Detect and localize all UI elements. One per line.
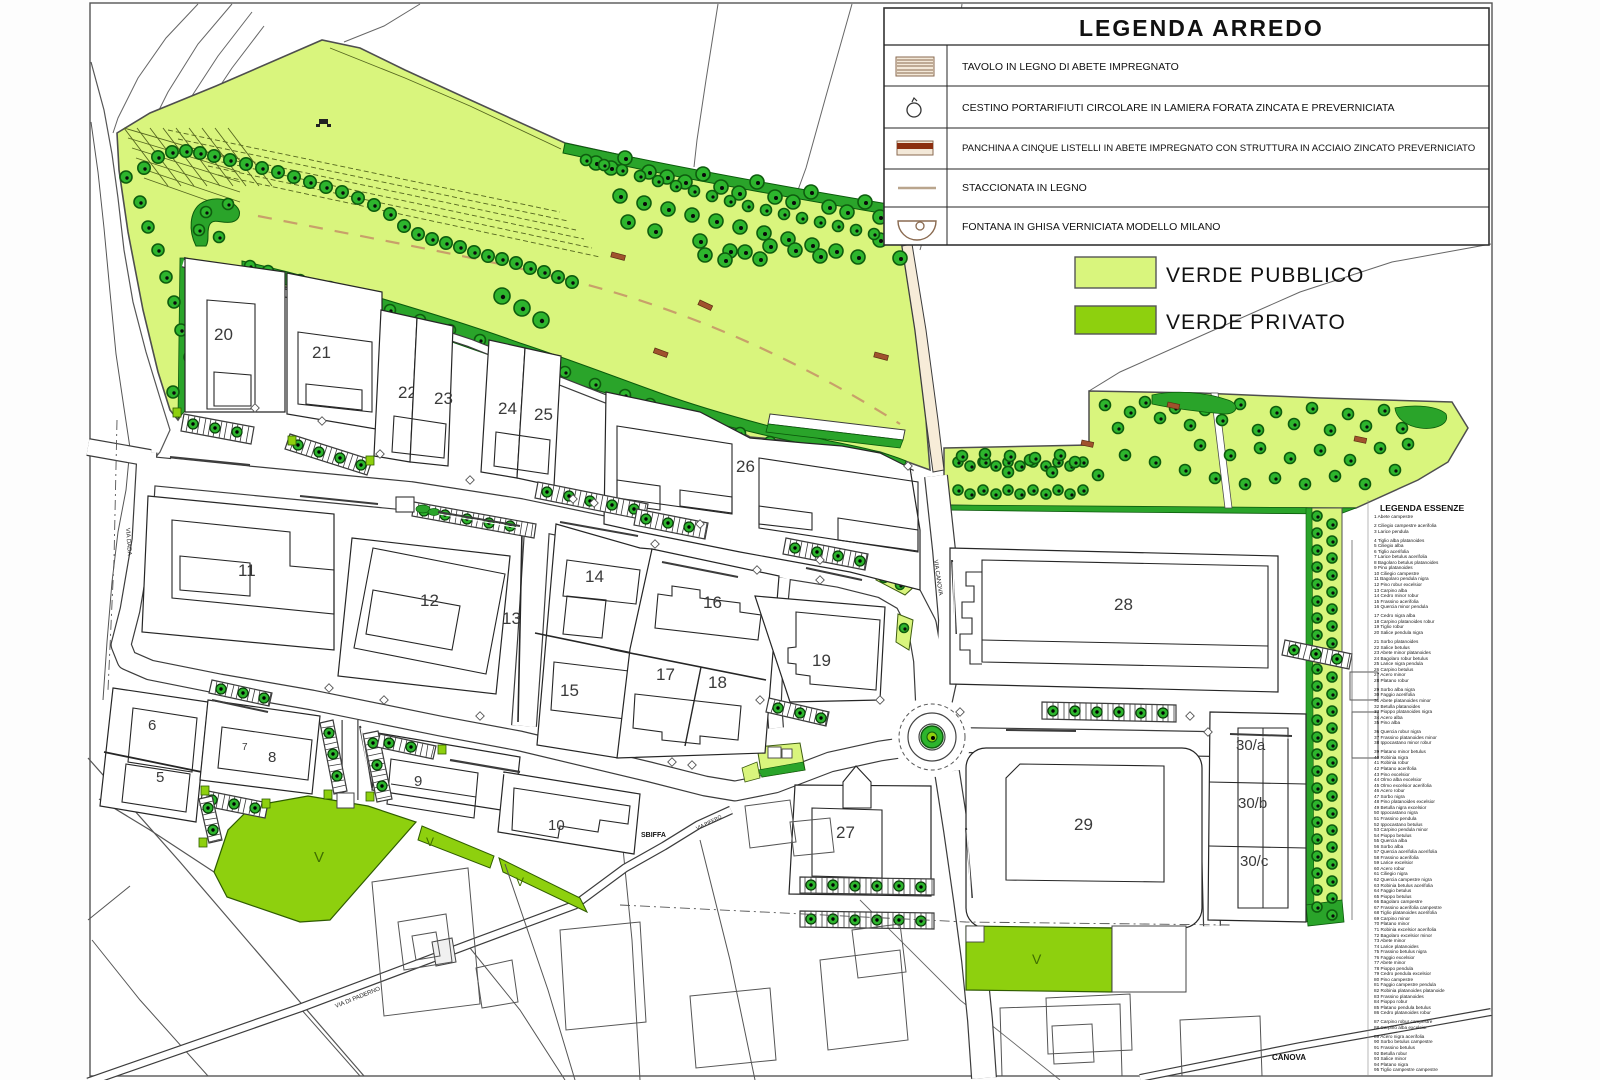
svg-text:11 Bagolaro pendula nigra: 11 Bagolaro pendula nigra — [1374, 576, 1429, 581]
svg-text:9 Pino platanoides: 9 Pino platanoides — [1374, 565, 1413, 570]
svg-text:84 Pioppo robur: 84 Pioppo robur — [1374, 999, 1408, 1004]
svg-text:25: 25 — [534, 405, 553, 424]
svg-text:93 Salice minor: 93 Salice minor — [1374, 1056, 1407, 1061]
svg-text:14 Cedro minor robur: 14 Cedro minor robur — [1374, 593, 1419, 598]
svg-text:CANOVA: CANOVA — [1272, 1053, 1306, 1062]
svg-text:1 Abete campestre: 1 Abete campestre — [1374, 514, 1413, 519]
svg-text:12 Pino robur excelsior: 12 Pino robur excelsior — [1374, 582, 1422, 587]
svg-text:CESTINO PORTARIFIUTI CIRCOLA: CESTINO PORTARIFIUTI CIRCOLARE IN LAMIER… — [962, 102, 1395, 114]
svg-text:21: 21 — [312, 343, 331, 362]
svg-text:15: 15 — [560, 681, 579, 700]
svg-text:16 Quercia minor pendula: 16 Quercia minor pendula — [1374, 604, 1428, 609]
svg-text:90 Sorbo betulus campestre: 90 Sorbo betulus campestre — [1374, 1039, 1433, 1044]
svg-text:17 Cedro nigra alba: 17 Cedro nigra alba — [1374, 613, 1416, 618]
svg-text:38 Ippocastano minor robur: 38 Ippocastano minor robur — [1374, 740, 1432, 745]
svg-text:STACCIONATA IN LEGNO: STACCIONATA IN LEGNO — [962, 182, 1087, 194]
svg-text:17: 17 — [656, 665, 675, 684]
svg-text:36 Quercia robur nigra: 36 Quercia robur nigra — [1374, 729, 1421, 734]
svg-text:7 Larice betulus acerifolia: 7 Larice betulus acerifolia — [1374, 554, 1428, 559]
svg-text:57 Quercia acerifolia acerifo: 57 Quercia acerifolia acerifolia — [1374, 849, 1437, 854]
svg-text:PANCHINA A CINQUE LISTELLI: PANCHINA A CINQUE LISTELLI IN ABETE IMPR… — [962, 143, 1475, 154]
svg-text:V: V — [1032, 951, 1042, 967]
svg-text:TAVOLO IN LEGNO DI ABETE: TAVOLO IN LEGNO DI ABETE IMPREGNATO — [962, 61, 1179, 73]
svg-text:73 Abete minor: 73 Abete minor — [1374, 938, 1406, 943]
svg-text:9: 9 — [414, 773, 422, 790]
svg-text:30 Faggio acerifolia: 30 Faggio acerifolia — [1374, 692, 1415, 697]
svg-text:77 Abete minor: 77 Abete minor — [1374, 960, 1406, 965]
svg-text:5 Ciliegio alba: 5 Ciliegio alba — [1374, 543, 1404, 548]
svg-text:30/a: 30/a — [1236, 737, 1266, 754]
svg-text:59 Larice excelsior: 59 Larice excelsior — [1374, 860, 1414, 865]
svg-text:26: 26 — [736, 457, 755, 476]
svg-text:86 Cedro platanoides robur: 86 Cedro platanoides robur — [1374, 1010, 1431, 1015]
svg-text:21 Sorbo platanoides: 21 Sorbo platanoides — [1374, 639, 1419, 644]
svg-text:24: 24 — [498, 399, 517, 418]
svg-text:39 Platano minor betulus: 39 Platano minor betulus — [1374, 749, 1427, 754]
svg-text:23 Abete minor platanoides: 23 Abete minor platanoides — [1374, 650, 1431, 655]
svg-text:64 Faggio betulus: 64 Faggio betulus — [1374, 888, 1412, 893]
svg-text:23: 23 — [434, 389, 453, 408]
svg-text:30/b: 30/b — [1238, 795, 1267, 812]
svg-text:46 Acero robur: 46 Acero robur — [1374, 788, 1405, 793]
svg-text:27: 27 — [836, 823, 855, 842]
svg-text:VERDE PUBBLICO: VERDE PUBBLICO — [1166, 264, 1364, 287]
svg-text:V: V — [314, 849, 324, 866]
svg-text:20 Salice pendula nigra: 20 Salice pendula nigra — [1374, 630, 1423, 635]
svg-text:8: 8 — [268, 749, 276, 766]
svg-text:75 Frassino betulus nigra: 75 Frassino betulus nigra — [1374, 949, 1427, 954]
svg-text:27 Acero minor: 27 Acero minor — [1374, 672, 1406, 677]
svg-text:48 Pino platanoides excelsior: 48 Pino platanoides excelsior — [1374, 799, 1435, 804]
svg-text:42 Platano acerifolia: 42 Platano acerifolia — [1374, 766, 1417, 771]
svg-text:55 Quercia alba: 55 Quercia alba — [1374, 838, 1407, 843]
svg-text:28 Platano robur: 28 Platano robur — [1374, 678, 1409, 683]
svg-text:12: 12 — [420, 591, 439, 610]
svg-text:19: 19 — [812, 651, 831, 670]
svg-text:V: V — [516, 875, 524, 889]
svg-text:81 Faggio campestre pendula: 81 Faggio campestre pendula — [1374, 982, 1436, 987]
svg-text:LEGENDA ESSENZE: LEGENDA ESSENZE — [1380, 503, 1464, 513]
svg-text:2 Ciliegio campestre acerifol: 2 Ciliegio campestre acerifolia — [1374, 523, 1437, 528]
svg-text:91 Frassino betulus: 91 Frassino betulus — [1374, 1045, 1416, 1050]
svg-text:95 Tiglio campestre campestre: 95 Tiglio campestre campestre — [1374, 1067, 1438, 1072]
svg-text:FONTANA IN GHISA VERNICIATA: FONTANA IN GHISA VERNICIATA MODELLO MILA… — [962, 221, 1220, 233]
svg-text:31 Abete platanoides minor: 31 Abete platanoides minor — [1374, 698, 1431, 703]
svg-text:82 Robinia platanoides platan: 82 Robinia platanoides platanoide — [1374, 988, 1445, 993]
svg-text:20: 20 — [214, 325, 233, 344]
svg-text:25 Larice nigra pendula: 25 Larice nigra pendula — [1374, 661, 1423, 666]
svg-text:19 Tiglio robur: 19 Tiglio robur — [1374, 624, 1404, 629]
svg-text:44 Olmo alba excelsior: 44 Olmo alba excelsior — [1374, 777, 1422, 782]
svg-text:35 Pino alba: 35 Pino alba — [1374, 720, 1400, 725]
svg-text:68 Tiglio platanoides acerifo: 68 Tiglio platanoides acerifolia — [1374, 910, 1437, 915]
svg-text:41 Robinia robur: 41 Robinia robur — [1374, 760, 1409, 765]
svg-text:7: 7 — [242, 742, 248, 753]
svg-text:V: V — [426, 835, 434, 849]
svg-text:66 Bagolaro campestre: 66 Bagolaro campestre — [1374, 899, 1423, 904]
svg-text:16: 16 — [703, 593, 722, 612]
svg-text:13: 13 — [502, 609, 521, 628]
svg-text:3 Larice pendula: 3 Larice pendula — [1374, 529, 1409, 534]
svg-text:30/c: 30/c — [1240, 853, 1269, 870]
svg-text:29: 29 — [1074, 815, 1093, 834]
svg-text:SBIFFA: SBIFFA — [641, 832, 666, 839]
svg-text:14: 14 — [585, 567, 604, 586]
svg-text:18: 18 — [708, 673, 727, 692]
svg-text:50 Ippocastano nigra: 50 Ippocastano nigra — [1374, 810, 1418, 815]
svg-text:70 Platano minor: 70 Platano minor — [1374, 921, 1410, 926]
svg-text:79 Cedro pendula excelsior: 79 Cedro pendula excelsior — [1374, 971, 1432, 976]
svg-text:VERDE PRIVATO: VERDE PRIVATO — [1166, 311, 1346, 334]
svg-text:28: 28 — [1114, 595, 1133, 614]
svg-text:33 Pioppo platanoides nigra: 33 Pioppo platanoides nigra — [1374, 709, 1433, 714]
svg-text:LEGENDA ARREDO: LEGENDA ARREDO — [1079, 15, 1324, 41]
svg-text:6: 6 — [148, 717, 156, 734]
svg-text:10: 10 — [548, 817, 565, 834]
svg-text:62 Quercia campestre nigra: 62 Quercia campestre nigra — [1374, 877, 1432, 882]
svg-text:51 Frassino pendula: 51 Frassino pendula — [1374, 816, 1417, 821]
svg-text:53 Carpino pendula minor: 53 Carpino pendula minor — [1374, 827, 1428, 832]
svg-text:87 Carpino robur campestre: 87 Carpino robur campestre — [1374, 1019, 1433, 1024]
svg-text:5: 5 — [156, 769, 164, 786]
svg-text:11: 11 — [238, 561, 256, 580]
svg-text:71 Robinia excelsior acerifol: 71 Robinia excelsior acerifolia — [1374, 927, 1437, 932]
svg-text:61 Ciliegio nigra: 61 Ciliegio nigra — [1374, 871, 1408, 876]
svg-text:88 Carpino alba excelsior: 88 Carpino alba excelsior — [1374, 1025, 1427, 1030]
